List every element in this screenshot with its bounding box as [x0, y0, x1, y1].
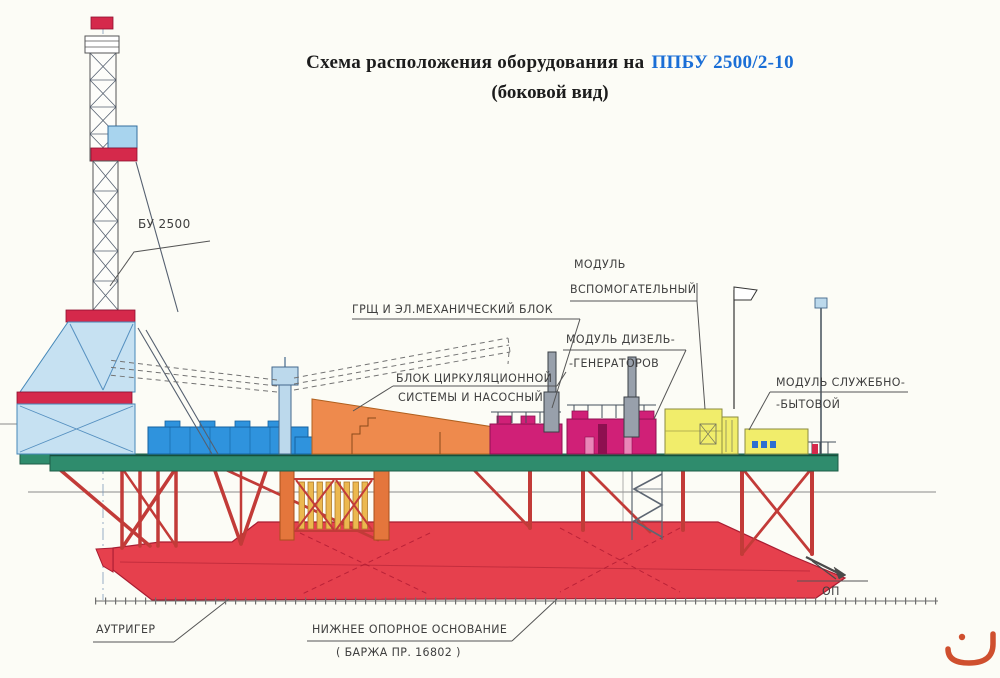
label-lower-base-line1: НИЖНЕЕ ОПОРНОЕ ОСНОВАНИЕ: [312, 622, 507, 636]
label-service-module-line2: -БЫТОВОЙ: [776, 397, 840, 411]
label-diesel-module-line2: -ГЕНЕРАТОРОВ: [569, 356, 659, 370]
flag: [734, 287, 757, 409]
label-service-module-line1: МОДУЛЬ СЛУЖЕБНО-: [776, 375, 905, 389]
auxiliary-module: [665, 409, 738, 454]
pipe-rack: [280, 470, 389, 540]
label-derrick: БУ 2500: [138, 216, 191, 231]
label-diesel-module-line1: МОДУЛЬ ДИЗЕЛЬ-: [566, 332, 675, 346]
label-lower-base-line2: ( БАРЖА ПР. 16802 ): [336, 645, 461, 659]
label-op-mark: ОП: [822, 584, 840, 598]
barge-hull: [96, 522, 845, 600]
label-aux-module-line1: МОДУЛЬ: [574, 257, 626, 271]
diagram-canvas: [0, 0, 1000, 678]
circulation-pump-block: [312, 399, 520, 454]
deck-bollard: [812, 444, 818, 454]
label-circulation-block-line2: СИСТЕМЫ И НАСОСНЫЙ: [398, 390, 543, 404]
label-switchboard-block: ГРЩ И ЭЛ.МЕХАНИЧЕСКИЙ БЛОК: [352, 302, 553, 316]
derrick-tower: [17, 17, 218, 454]
service-living-module: [745, 429, 808, 454]
label-aux-module-line2: ВСПОМОГАТЕЛЬНЫЙ: [570, 282, 696, 296]
label-circulation-block-line1: БЛОК ЦИРКУЛЯЦИОННОЙ: [396, 371, 552, 385]
label-outrigger: АУТРИГЕР: [96, 622, 155, 636]
brand-mark-icon: [948, 634, 993, 663]
equipment-layout-diagram: Схема расположения оборудования наППБУ 2…: [0, 0, 1000, 678]
